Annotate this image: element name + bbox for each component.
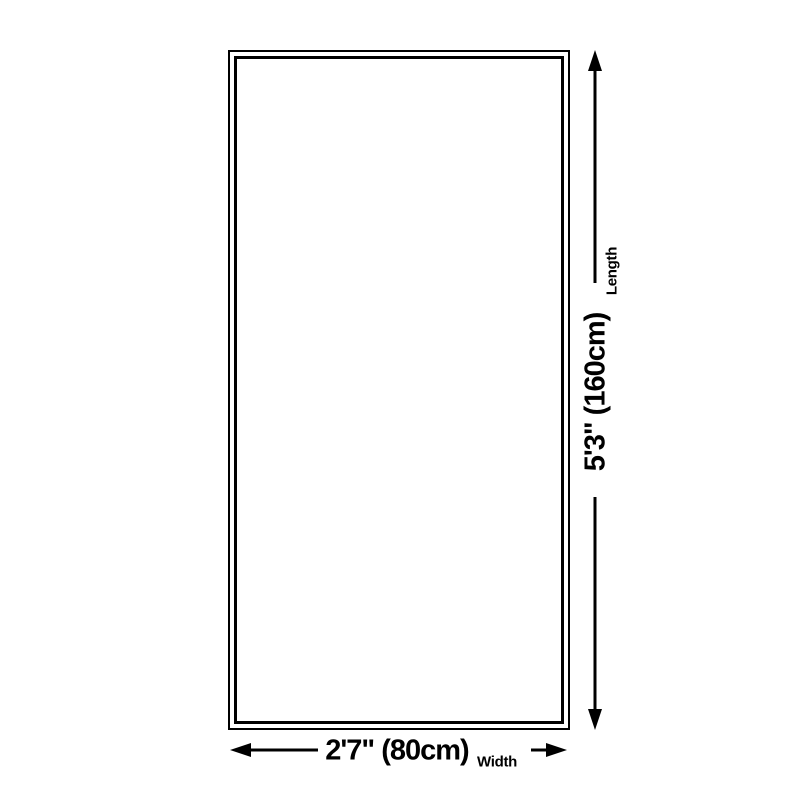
dimension-diagram: 5'3" (160cm) Length 2'7" (80cm) Width [0, 0, 800, 800]
product-outline [228, 50, 570, 730]
length-label: Length [604, 247, 621, 295]
width-arrowhead-right [546, 743, 567, 757]
width-label: Width [477, 754, 517, 771]
width-value: 2'7" (80cm) [325, 735, 468, 768]
width-arrowhead-left [230, 743, 251, 757]
length-arrowhead-up [588, 50, 602, 71]
product-outline-inner [234, 56, 564, 724]
length-arrowhead-down [588, 709, 602, 730]
length-value: 5'3" (160cm) [580, 313, 613, 472]
